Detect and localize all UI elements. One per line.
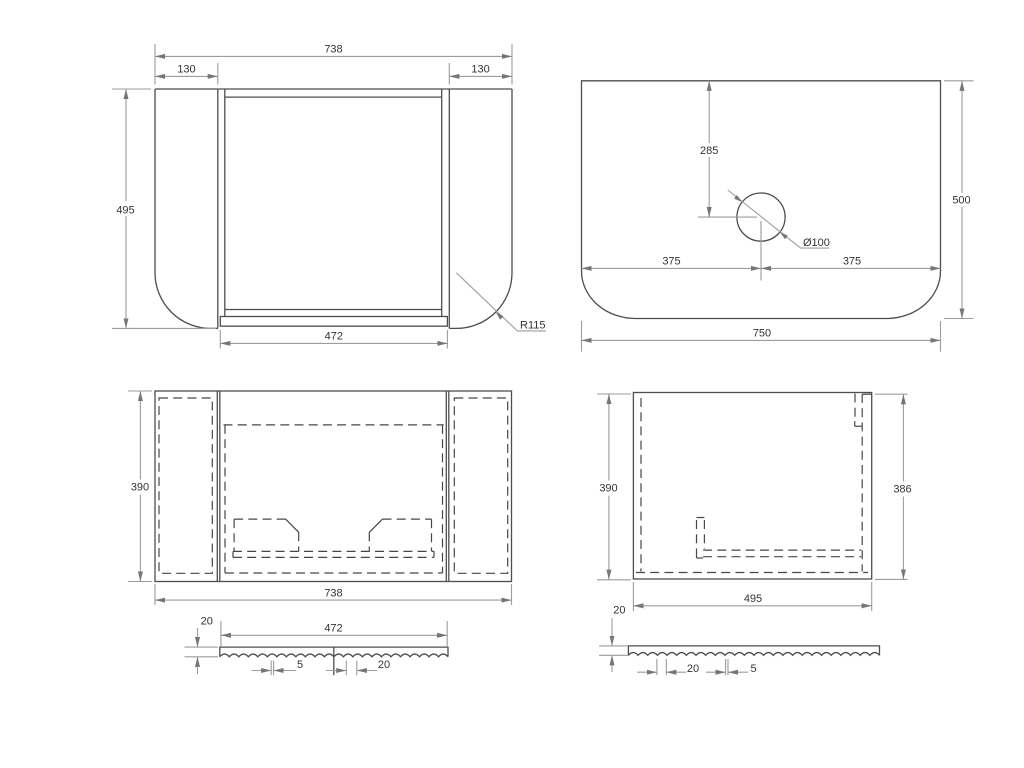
svg-text:390: 390 [599,483,617,495]
svg-text:20: 20 [378,659,390,671]
svg-text:20: 20 [201,615,213,627]
svg-text:5: 5 [297,659,303,671]
svg-text:Ø100: Ø100 [803,237,830,249]
svg-text:285: 285 [700,145,718,157]
svg-text:375: 375 [843,256,861,268]
svg-text:750: 750 [753,327,771,339]
svg-text:472: 472 [325,331,343,343]
svg-text:390: 390 [131,482,149,494]
svg-text:R115: R115 [520,319,545,331]
svg-text:375: 375 [662,256,680,268]
svg-text:20: 20 [687,663,699,675]
svg-text:5: 5 [750,663,756,675]
svg-text:495: 495 [744,593,762,605]
svg-text:130: 130 [177,64,195,76]
svg-text:738: 738 [324,44,342,56]
svg-text:20: 20 [613,605,625,617]
svg-text:500: 500 [952,195,970,207]
svg-text:386: 386 [893,484,911,496]
svg-text:738: 738 [324,587,342,599]
svg-text:472: 472 [324,622,342,634]
svg-text:130: 130 [471,64,489,76]
svg-text:495: 495 [116,205,134,217]
